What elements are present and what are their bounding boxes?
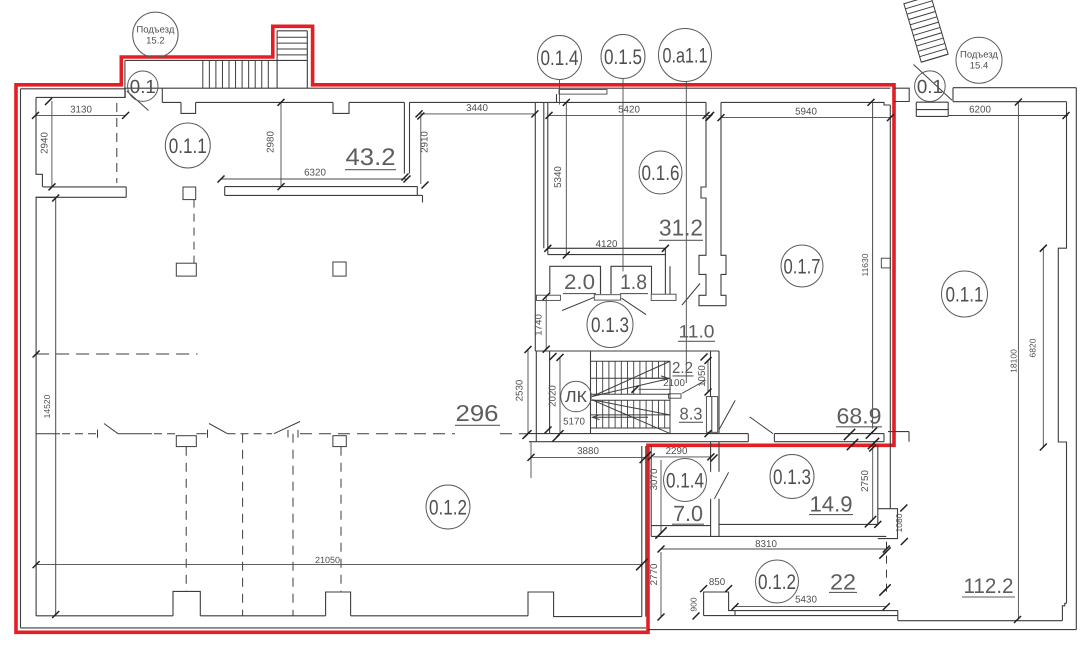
- svg-text:Подъезд: Подъезд: [136, 24, 174, 35]
- svg-text:43.2: 43.2: [346, 144, 396, 171]
- svg-text:112.2: 112.2: [964, 575, 1014, 598]
- svg-text:8310: 8310: [755, 539, 777, 550]
- svg-text:0.1.4: 0.1.4: [666, 469, 704, 492]
- svg-text:0.1.1: 0.1.1: [946, 283, 984, 306]
- svg-text:3880: 3880: [577, 446, 599, 457]
- svg-text:2100: 2100: [663, 378, 685, 389]
- svg-text:3130: 3130: [70, 104, 92, 115]
- svg-text:2290: 2290: [666, 446, 688, 457]
- svg-text:31.2: 31.2: [659, 215, 703, 241]
- svg-text:0.1.7: 0.1.7: [784, 255, 821, 278]
- svg-text:21050: 21050: [315, 555, 340, 565]
- svg-text:0.1.4: 0.1.4: [541, 47, 579, 70]
- svg-text:11.0: 11.0: [679, 322, 715, 342]
- svg-text:2020: 2020: [547, 385, 558, 407]
- svg-text:5170: 5170: [563, 416, 585, 427]
- svg-text:Подъезд: Подъезд: [960, 50, 998, 61]
- svg-text:5430: 5430: [795, 595, 817, 606]
- svg-text:14520: 14520: [42, 394, 52, 418]
- svg-text:3440: 3440: [466, 103, 488, 114]
- svg-text:2530: 2530: [514, 379, 525, 401]
- svg-text:0.1.1: 0.1.1: [169, 135, 207, 158]
- svg-text:0.1.3: 0.1.3: [773, 466, 811, 489]
- svg-text:3070: 3070: [649, 468, 660, 490]
- svg-text:7.0: 7.0: [673, 501, 703, 526]
- svg-text:2770: 2770: [649, 563, 660, 585]
- svg-text:1050: 1050: [697, 365, 708, 387]
- svg-text:2940: 2940: [40, 132, 51, 154]
- svg-text:6320: 6320: [304, 168, 326, 179]
- svg-text:296: 296: [456, 400, 499, 426]
- svg-text:15.2: 15.2: [146, 35, 165, 46]
- svg-text:68.9: 68.9: [837, 404, 882, 429]
- svg-text:14.9: 14.9: [810, 492, 853, 517]
- svg-text:5420: 5420: [618, 104, 640, 115]
- svg-text:15.4: 15.4: [970, 61, 989, 72]
- svg-text:1080: 1080: [894, 513, 904, 532]
- svg-text:1740: 1740: [534, 314, 545, 336]
- svg-text:0.1: 0.1: [917, 77, 943, 98]
- svg-text:4120: 4120: [596, 239, 618, 250]
- svg-text:ЛК: ЛК: [565, 389, 588, 406]
- svg-text:2.0: 2.0: [564, 271, 595, 294]
- svg-text:6820: 6820: [1028, 338, 1038, 357]
- svg-text:2910: 2910: [420, 131, 431, 153]
- svg-text:18100: 18100: [1009, 349, 1019, 373]
- svg-text:11630: 11630: [860, 253, 870, 276]
- svg-text:22: 22: [830, 570, 856, 595]
- svg-text:8.3: 8.3: [680, 405, 703, 424]
- svg-text:1.8: 1.8: [620, 271, 647, 294]
- svg-text:0.1.2: 0.1.2: [758, 571, 796, 594]
- svg-text:0.1.6: 0.1.6: [642, 162, 680, 185]
- svg-text:0.1.5: 0.1.5: [604, 46, 642, 69]
- svg-text:0.1: 0.1: [130, 77, 156, 98]
- svg-text:2.2: 2.2: [672, 360, 693, 377]
- svg-text:2750: 2750: [860, 470, 871, 492]
- svg-text:0.a1.1: 0.a1.1: [663, 44, 708, 67]
- svg-text:850: 850: [709, 577, 726, 588]
- svg-text:5940: 5940: [795, 107, 817, 118]
- svg-text:900: 900: [688, 597, 698, 611]
- svg-text:0.1.3: 0.1.3: [591, 314, 629, 337]
- svg-text:2980: 2980: [266, 131, 277, 153]
- svg-text:5340: 5340: [553, 166, 564, 188]
- svg-text:0.1.2: 0.1.2: [429, 496, 467, 519]
- svg-text:6200: 6200: [969, 105, 991, 116]
